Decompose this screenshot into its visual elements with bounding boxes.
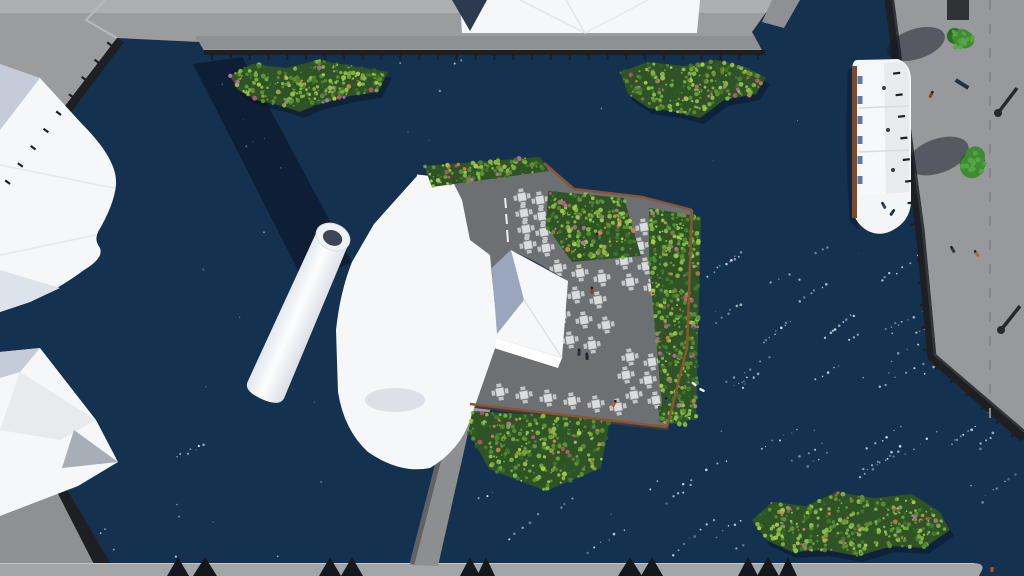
boat-seat — [858, 96, 863, 104]
quay-wall — [204, 50, 765, 55]
boat-canopy-facet — [859, 63, 886, 196]
bollard — [896, 94, 903, 95]
bollard — [888, 30, 895, 31]
lamp-head — [997, 326, 1005, 334]
quay-walkway — [196, 36, 768, 49]
boat-seat — [858, 176, 863, 184]
canopy-vent — [891, 168, 895, 172]
bollard — [900, 138, 907, 139]
bollard — [898, 116, 905, 117]
canopy-vent — [886, 128, 890, 132]
boat-gunwale — [852, 66, 857, 218]
boat-seat — [858, 136, 863, 144]
bollard — [905, 181, 912, 182]
lamp-head — [994, 109, 1002, 117]
warehouse-roof — [460, 0, 700, 33]
kiosk-roof — [947, 0, 969, 20]
bollard — [886, 8, 893, 9]
bollard — [908, 202, 915, 203]
person — [590, 286, 593, 294]
render-stage — [0, 0, 1024, 576]
bollard — [891, 51, 898, 52]
person — [595, 232, 598, 240]
boat-seat — [858, 116, 863, 124]
boat-seat — [858, 76, 863, 84]
bollard — [910, 224, 917, 225]
tour-boat — [846, 59, 911, 234]
harbor-3d-viewport[interactable] — [0, 0, 1024, 576]
chimney-base-shade — [365, 388, 425, 412]
boat-seat — [858, 156, 863, 164]
bollard — [903, 159, 910, 160]
bollard — [893, 73, 900, 74]
canopy-vent — [882, 86, 886, 90]
